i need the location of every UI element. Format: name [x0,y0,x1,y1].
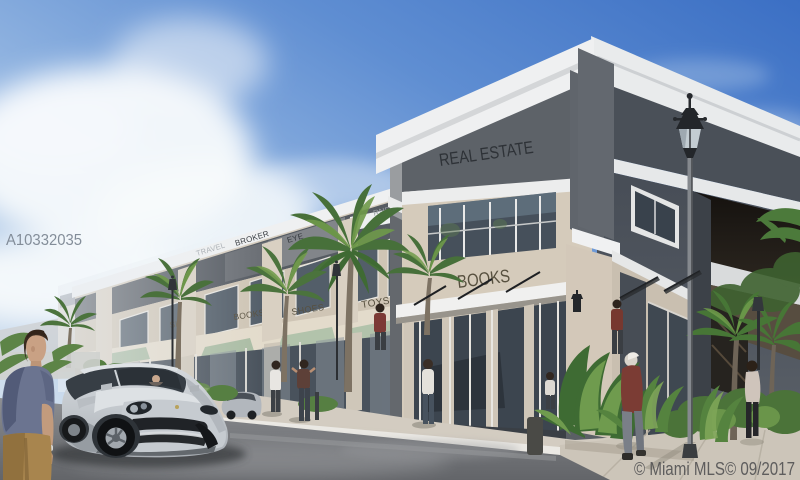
svg-text:© Miami MLS© 09/2017: © Miami MLS© 09/2017 [634,458,795,479]
svg-text:A10332035: A10332035 [6,232,82,249]
